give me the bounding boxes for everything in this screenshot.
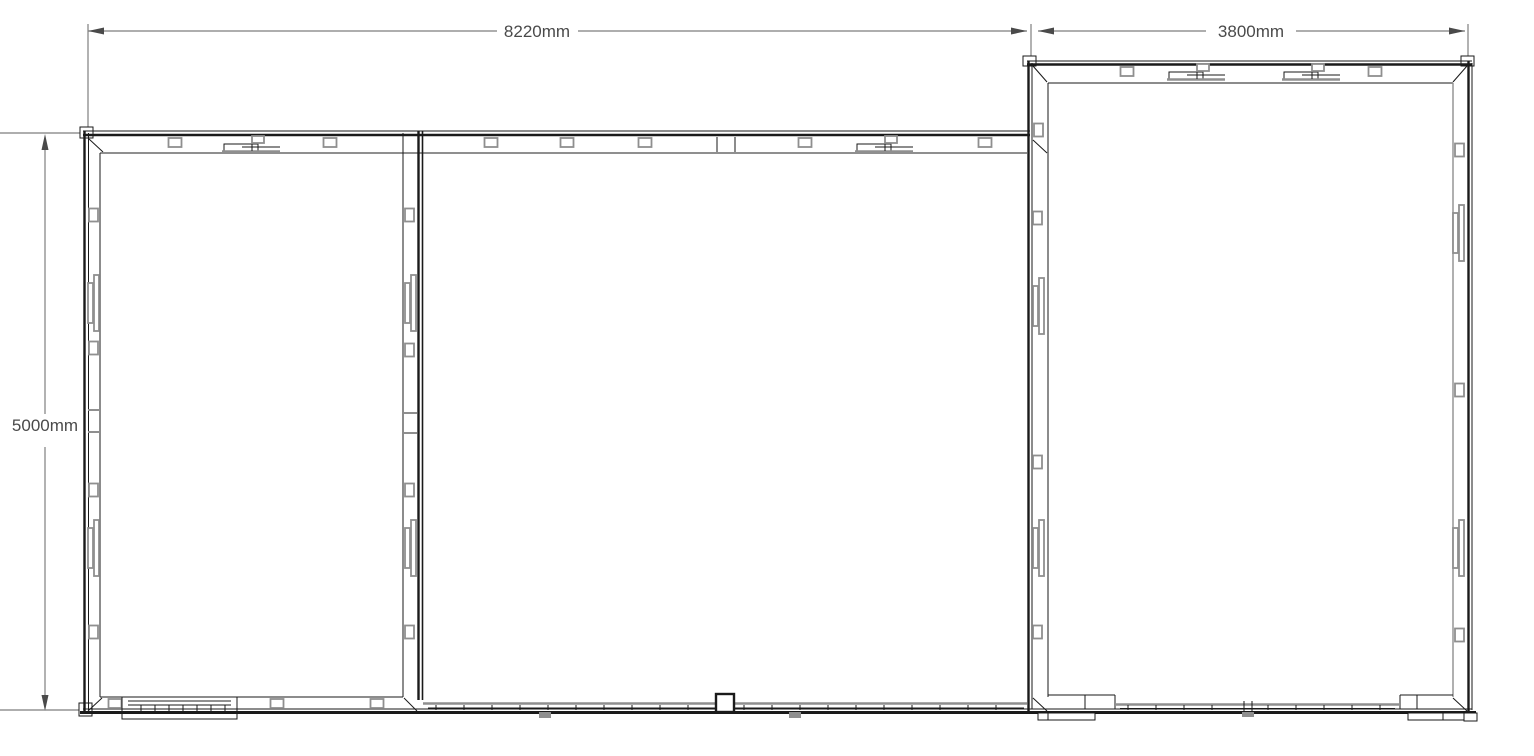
dimension-annex-width: 3800mm: [1038, 22, 1468, 57]
floor-plan-drawing: 8220mm 3800mm 5000mm: [0, 0, 1534, 756]
annex-left-wall: [1029, 61, 1049, 712]
panel-connectors: [222, 64, 1340, 152]
dimensions: 8220mm 3800mm 5000mm: [0, 22, 1468, 711]
foot: [789, 712, 801, 718]
plan: [79, 56, 1477, 721]
foot: [1408, 713, 1465, 720]
dimension-label-annex-width: 3800mm: [1218, 22, 1284, 41]
annex-sliding-wall: [1115, 701, 1400, 717]
foot: [539, 712, 551, 718]
door-track-ticks: [141, 705, 225, 711]
center-post: [716, 694, 734, 712]
dimension-main-width: 8220mm: [88, 22, 1031, 131]
annex-top-wall: [1027, 61, 1472, 83]
foot: [1038, 713, 1095, 720]
wall-studs: [88, 205, 1464, 576]
corner-brace: [1033, 66, 1047, 82]
corner-brace: [89, 139, 103, 152]
corner-braces: [88, 66, 1467, 711]
dimension-label-main-width: 8220mm: [504, 22, 570, 41]
floor-plan-canvas: 8220mm 3800mm 5000mm: [0, 0, 1534, 756]
foot: [1464, 713, 1477, 721]
corner-brace: [1033, 140, 1047, 153]
corner-brace: [1453, 66, 1467, 82]
foot: [1242, 712, 1254, 717]
left-door-assembly: [122, 697, 237, 719]
corner-posts: [79, 56, 1474, 716]
middle-sliding-wall: [423, 694, 1027, 718]
dimension-main-depth: 5000mm: [0, 133, 83, 711]
dimension-label-main-depth: 5000mm: [12, 416, 78, 435]
corner-post: [80, 127, 93, 138]
